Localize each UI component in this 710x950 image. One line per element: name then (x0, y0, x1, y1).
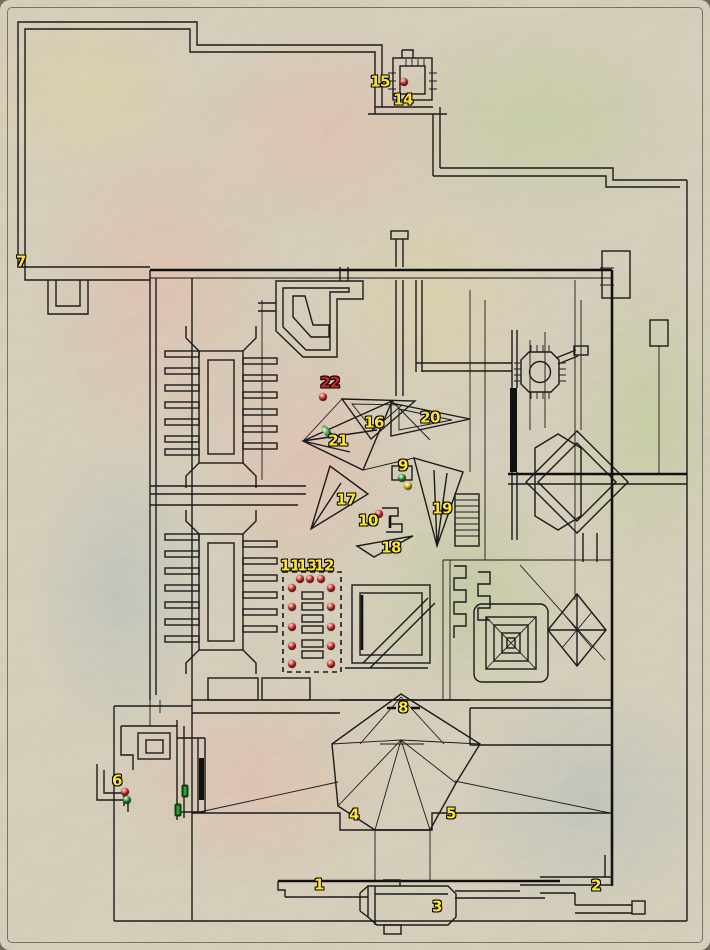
map-frame: 12345678910111312141516171819202122 (0, 0, 710, 950)
map-canvas (0, 0, 710, 950)
